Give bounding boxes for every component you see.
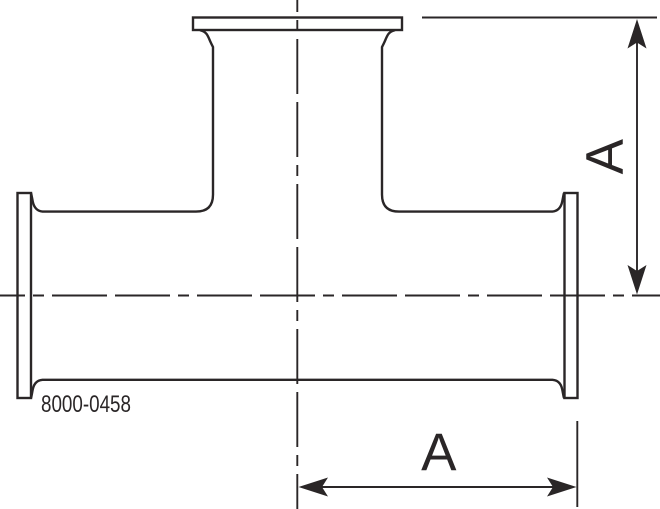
dimension-label-vertical: A [576,138,635,174]
part-number-label: 8000-0458 [41,391,131,418]
dimension-annotations [299,18,658,508]
dimension-label-horizontal: A [421,423,457,482]
drawing-sheet: 8000-0458 A A [0,0,660,509]
body-contour-upper-right [382,30,564,211]
tee-fitting-drawing: 8000-0458 A A [0,0,660,509]
body-contour-upper-left [31,30,213,211]
centerlines [0,0,660,509]
